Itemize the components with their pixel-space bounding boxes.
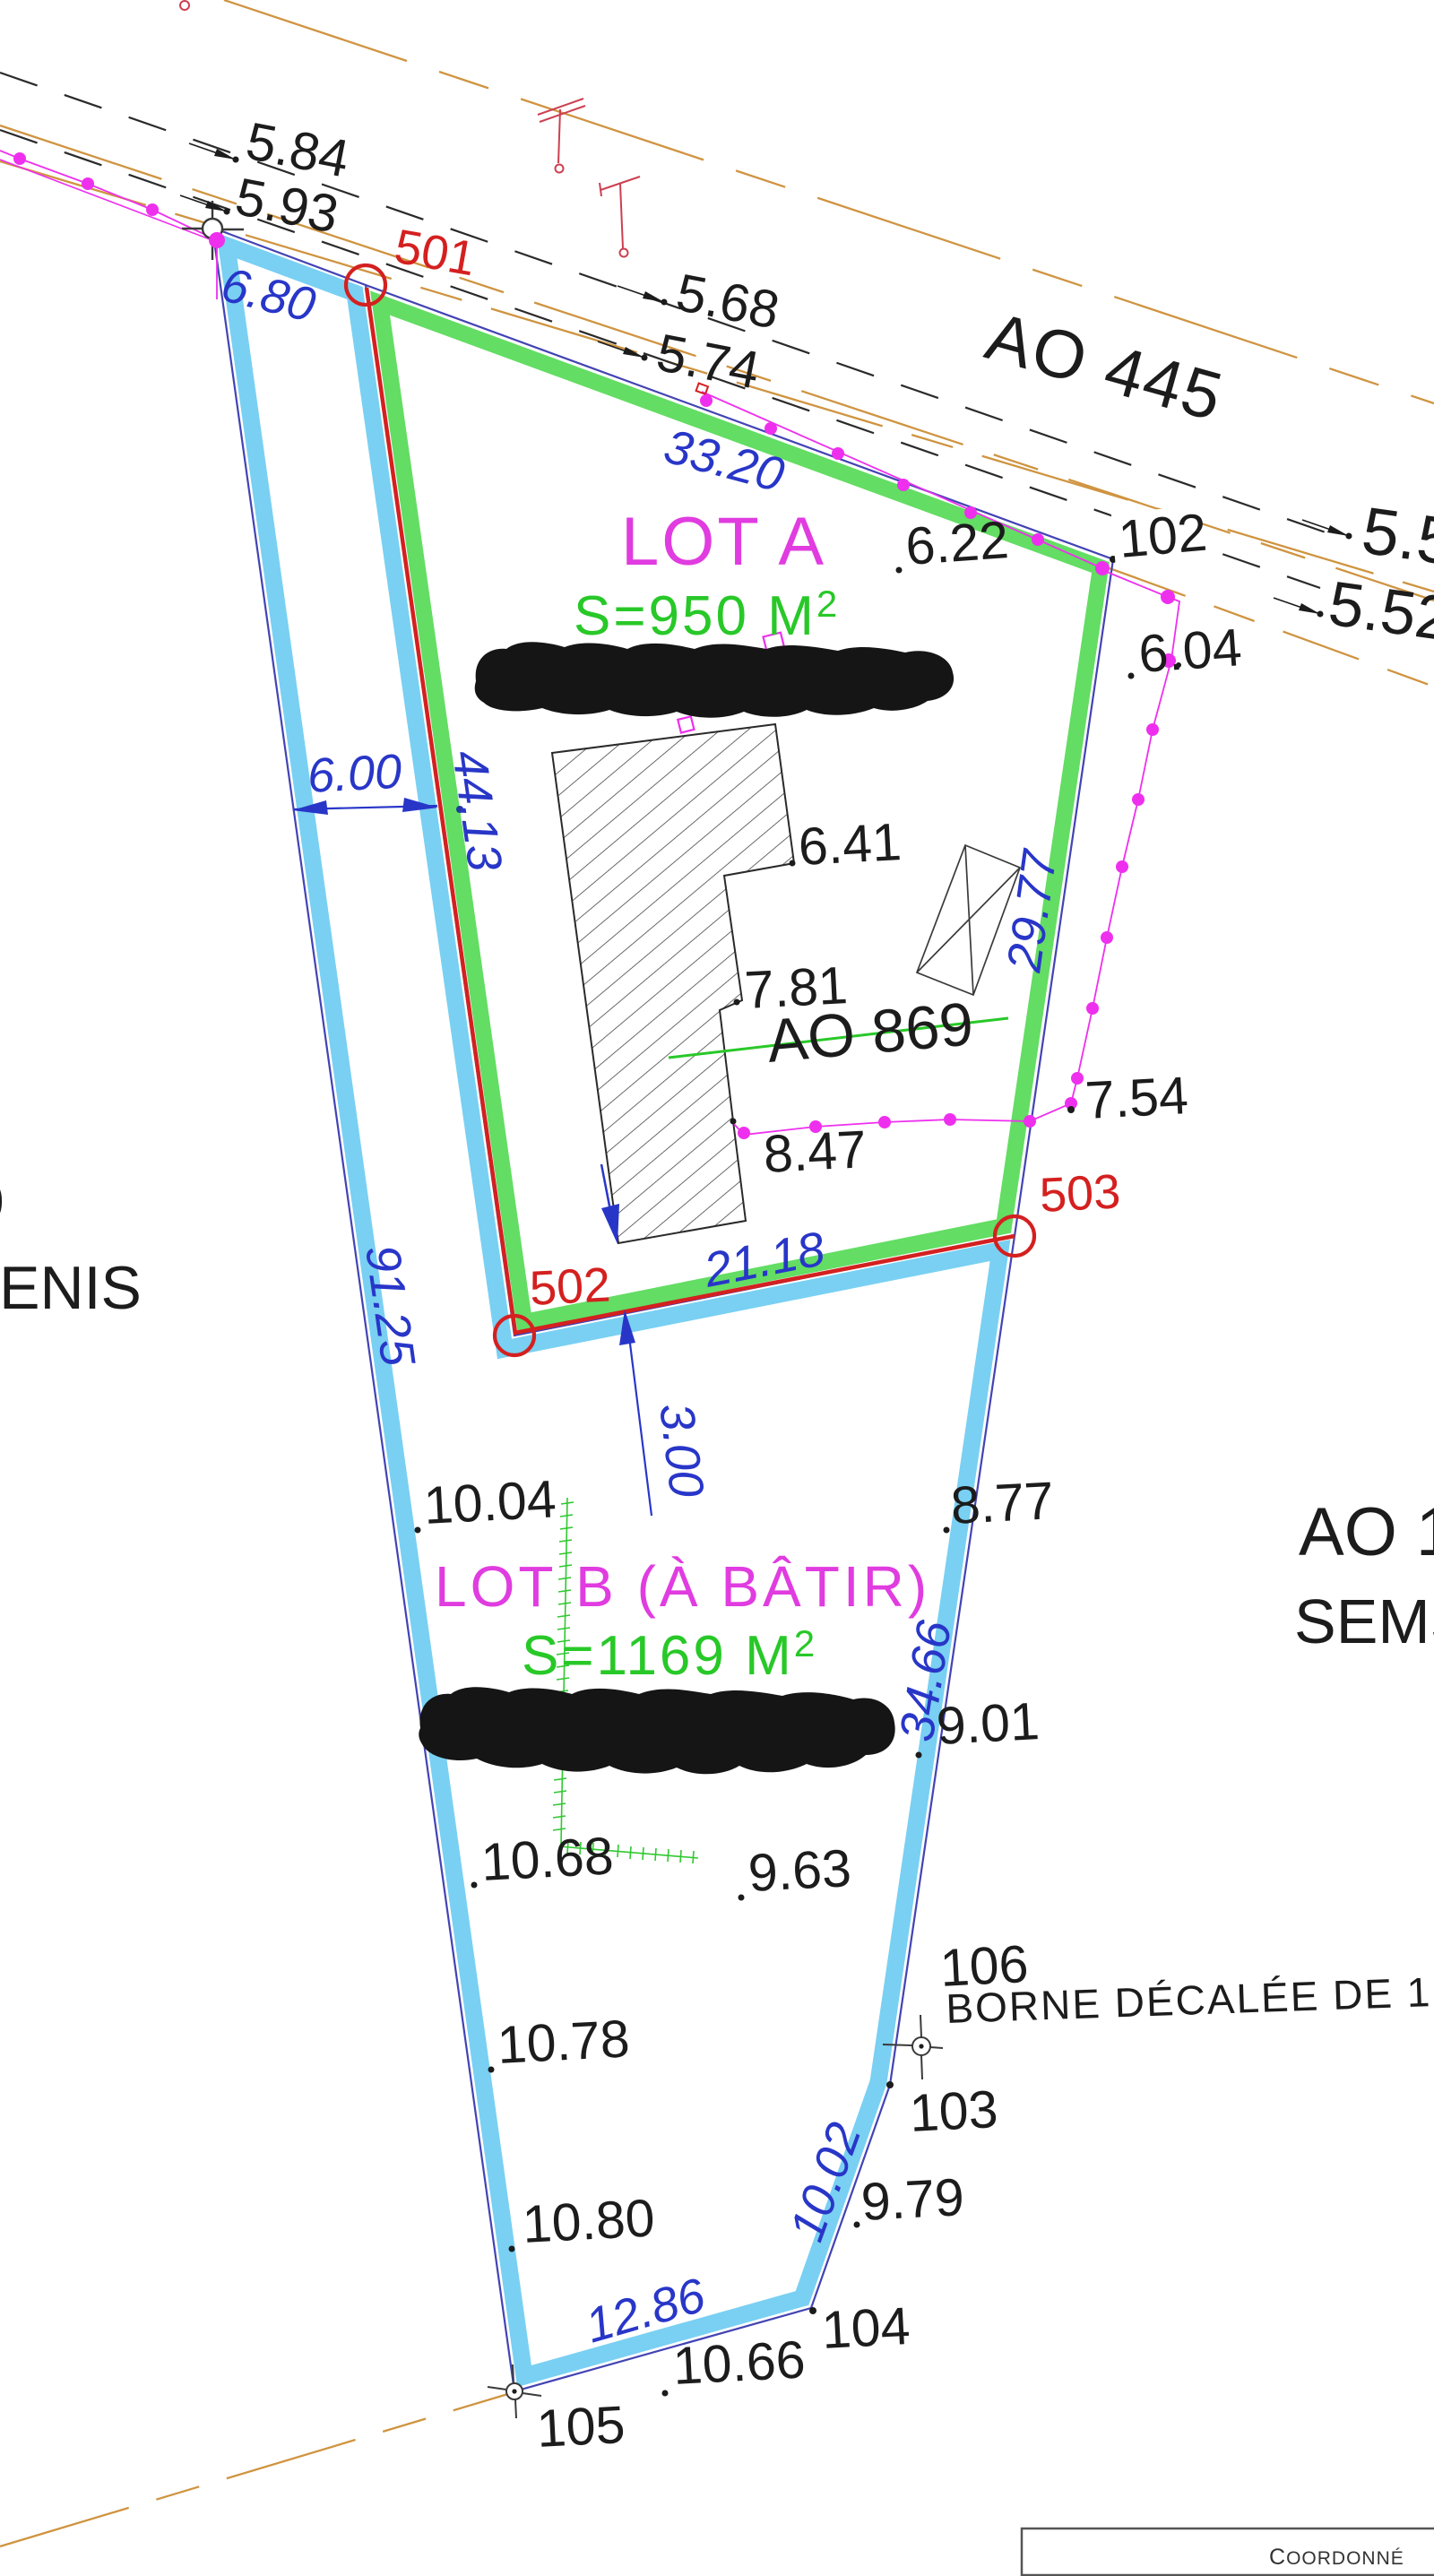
- svg-text:AO 10: AO 10: [1299, 1494, 1434, 1570]
- svg-text:10.68: 10.68: [479, 1826, 615, 1892]
- svg-text:503: 503: [1038, 1164, 1121, 1223]
- svg-text:6.04: 6.04: [1136, 618, 1243, 684]
- svg-text:104: 104: [820, 2296, 911, 2360]
- svg-text:8.47: 8.47: [762, 1119, 868, 1184]
- svg-text:502: 502: [528, 1258, 611, 1316]
- svg-text:10.04: 10.04: [422, 1469, 557, 1535]
- svg-text:103: 103: [908, 2079, 999, 2143]
- svg-text:SEMS: SEMS: [1294, 1586, 1434, 1656]
- svg-text:6.00: 6.00: [306, 745, 402, 803]
- svg-text:S=950 M2: S=950 M2: [574, 583, 840, 647]
- svg-text:7.54: 7.54: [1084, 1066, 1189, 1130]
- svg-text:9.79: 9.79: [860, 2167, 965, 2232]
- svg-text:5.5: 5.5: [1358, 493, 1434, 580]
- svg-text:8.77: 8.77: [949, 1471, 1055, 1535]
- svg-text:DENIS: DENIS: [0, 1254, 142, 1322]
- svg-text:6.41: 6.41: [797, 812, 903, 877]
- svg-text:3.00: 3.00: [649, 1400, 713, 1500]
- svg-text:10.80: 10.80: [521, 2188, 656, 2254]
- svg-text:LOT A: LOT A: [621, 504, 826, 580]
- svg-text:6.22: 6.22: [903, 510, 1010, 576]
- svg-text:10.78: 10.78: [496, 2009, 631, 2075]
- svg-text:105: 105: [535, 2395, 626, 2459]
- svg-text:COORDONNÉ: COORDONNÉ: [1269, 2545, 1404, 2570]
- svg-text:9.63: 9.63: [747, 1838, 852, 1903]
- svg-text:S=1169 M2: S=1169 M2: [522, 1622, 817, 1687]
- svg-text:10.66: 10.66: [671, 2330, 807, 2396]
- svg-text:LOT B (À BÂTIR): LOT B (À BÂTIR): [435, 1554, 930, 1619]
- svg-text:9.01: 9.01: [935, 1691, 1041, 1756]
- svg-text:102: 102: [1116, 503, 1209, 569]
- svg-text:0: 0: [0, 1171, 4, 1233]
